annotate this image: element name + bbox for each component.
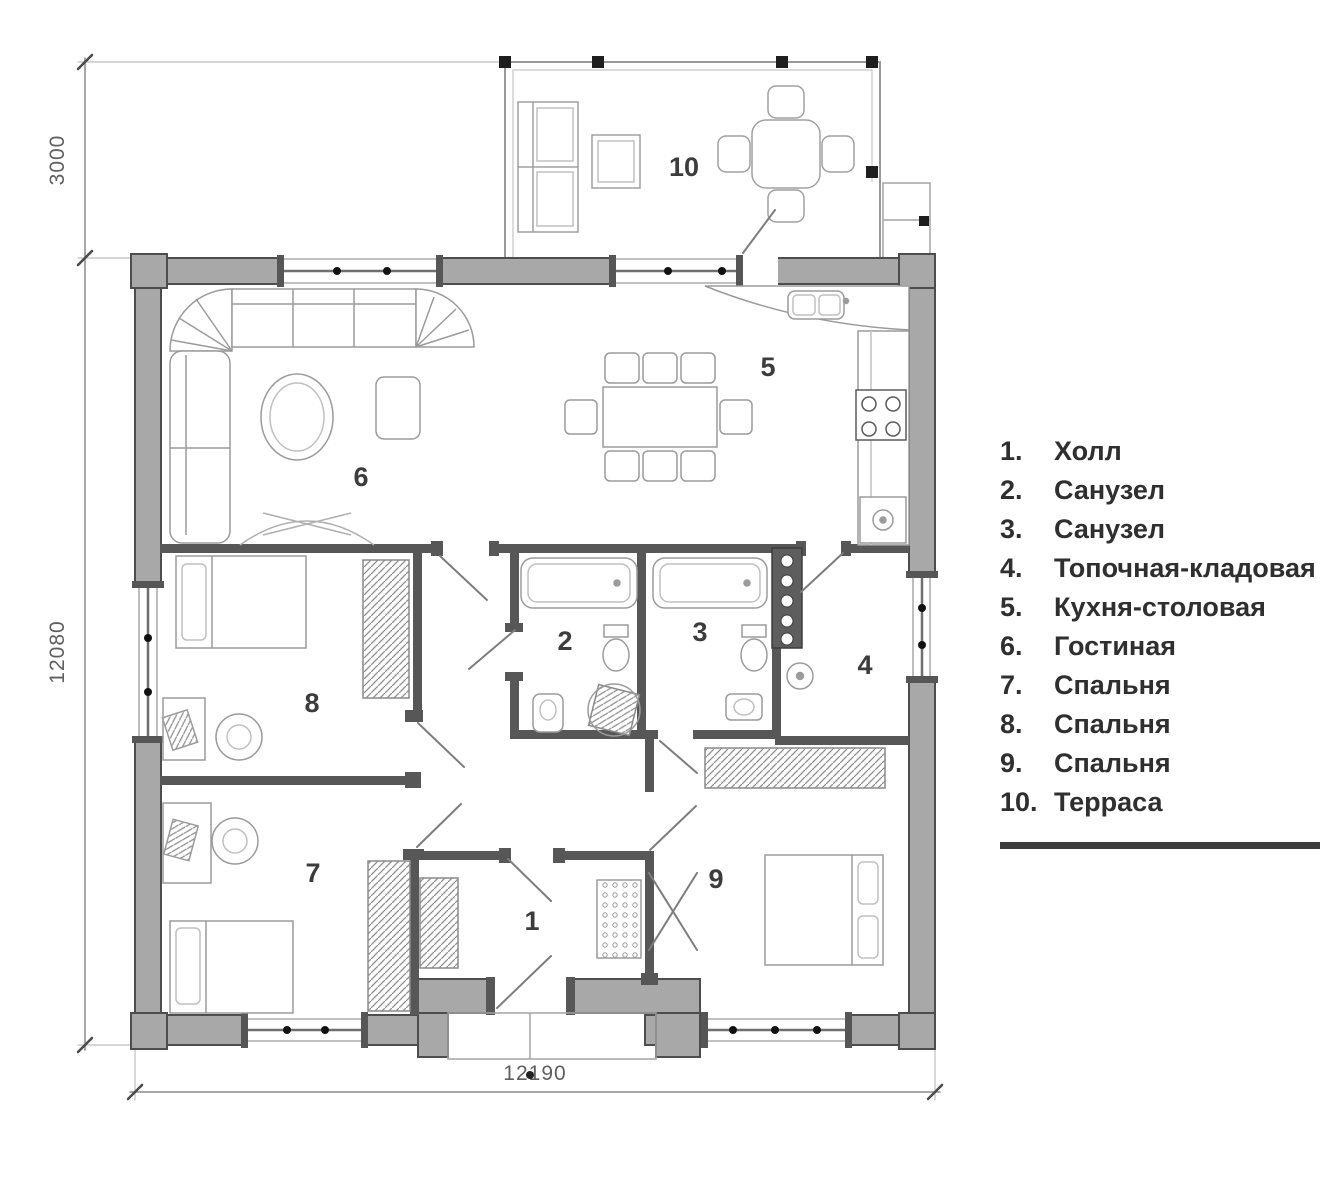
terrace-dining-set-icon — [718, 86, 854, 222]
legend-label: Гостиная — [1054, 631, 1176, 662]
legend-number: 10. — [1000, 787, 1054, 818]
legend-number: 8. — [1000, 709, 1054, 740]
legend-label: Холл — [1054, 436, 1122, 467]
stove-icon — [856, 390, 906, 440]
chair-icon — [212, 818, 258, 864]
window-living — [277, 255, 443, 287]
wardrobe-icon — [368, 861, 410, 1011]
dim-terrace-depth: 3000 — [46, 135, 69, 186]
window-bedroom7 — [241, 1012, 368, 1048]
bedroom9-furniture — [705, 748, 885, 965]
room-label-bath3: 3 — [692, 617, 707, 647]
room-label-living: 6 — [353, 462, 368, 492]
porch-steps — [448, 1013, 656, 1059]
legend-number: 5. — [1000, 592, 1054, 623]
grid-dot — [526, 1071, 534, 1079]
dim-house-width: 12190 — [503, 1062, 566, 1085]
legend-item-5: 5. Кухня-столовая — [1000, 592, 1320, 631]
room-label-bedroom7: 7 — [305, 858, 320, 888]
legend-number: 2. — [1000, 475, 1054, 506]
console-icon — [240, 513, 374, 545]
sink-icon — [726, 694, 762, 720]
legend-label: Кухня-столовая — [1054, 592, 1266, 623]
chair-icon — [216, 714, 262, 760]
room-label-boiler: 4 — [857, 650, 872, 680]
legend-item-1: 1. Холл — [1000, 436, 1320, 475]
legend-label: Терраса — [1054, 787, 1163, 818]
kitchen-sink-icon — [788, 291, 849, 319]
legend-label: Спальня — [1054, 748, 1171, 779]
toilet-icon — [741, 625, 767, 671]
washer-icon — [588, 684, 640, 736]
legend-item-10: 10. Терраса — [1000, 787, 1320, 826]
boiler-room-fixtures — [787, 663, 813, 689]
wardrobe-icon — [705, 748, 885, 788]
room-label-terrace: 10 — [669, 152, 699, 182]
legend-label: Спальня — [1054, 670, 1171, 701]
legend-item-9: 9. Спальня — [1000, 748, 1320, 787]
wardrobe-icon — [420, 878, 458, 968]
terrace-area — [499, 56, 930, 258]
wardrobe-icon — [363, 560, 409, 698]
legend-number: 1. — [1000, 436, 1054, 467]
legend-item-7: 7. Спальня — [1000, 670, 1320, 709]
bathtub-icon — [653, 558, 767, 608]
bathroom3-fixtures — [653, 558, 767, 720]
floor-plan-page: 3000 12080 12190 — [0, 0, 1320, 1188]
kitchen-furniture — [565, 286, 909, 545]
legend-number: 6. — [1000, 631, 1054, 662]
living-room-furniture — [170, 289, 474, 545]
armchair-icon — [376, 377, 420, 439]
room-label-bedroom8: 8 — [304, 688, 319, 718]
legend-item-3: 3. Санузел — [1000, 514, 1320, 553]
terrace-table-icon — [592, 135, 640, 188]
window-bedroom9 — [701, 1012, 852, 1048]
dim-house-depth: 12080 — [46, 620, 69, 683]
sink-icon — [533, 694, 563, 732]
boiler-column-icon — [772, 548, 802, 648]
window-bedroom8 — [132, 581, 164, 743]
double-bed-icon — [765, 855, 883, 965]
legend-label: Санузел — [1054, 514, 1165, 545]
bedroom7-furniture — [163, 803, 410, 1013]
legend-item-6: 6. Гостиная — [1000, 631, 1320, 670]
room-legend: 1. Холл 2. Санузел 3. Санузел 4. Топочна… — [1000, 436, 1320, 849]
bed-icon — [170, 921, 293, 1013]
legend-item-2: 2. Санузел — [1000, 475, 1320, 514]
legend-label: Спальня — [1054, 709, 1171, 740]
dining-set-icon — [565, 353, 752, 481]
bedroom8-furniture — [162, 556, 409, 760]
room-label-kitchen: 5 — [760, 352, 775, 382]
shoe-bench-icon — [597, 880, 641, 958]
room-label-bath2: 2 — [557, 626, 572, 656]
room-label-bedroom9: 9 — [708, 864, 723, 894]
floor-plan: 3000 12080 12190 — [0, 0, 960, 1188]
legend-item-8: 8. Спальня — [1000, 709, 1320, 748]
legend-number: 9. — [1000, 748, 1054, 779]
bed-icon — [176, 556, 306, 648]
window-kitchen — [609, 255, 743, 287]
coffee-table-icon — [261, 374, 333, 460]
window-boiler-room — [906, 571, 938, 683]
legend-label: Топочная-кладовая — [1054, 553, 1316, 584]
room-label-hall: 1 — [524, 906, 539, 936]
legend-number: 7. — [1000, 670, 1054, 701]
legend-number: 3. — [1000, 514, 1054, 545]
toilet-icon — [603, 625, 629, 671]
legend-number: 4. — [1000, 553, 1054, 584]
legend-divider — [1000, 842, 1320, 849]
kitchen-appliance-icon — [860, 497, 906, 543]
legend-item-4: 4. Топочная-кладовая — [1000, 553, 1320, 592]
terrace-sofa-icon — [518, 102, 578, 232]
legend-label: Санузел — [1054, 475, 1165, 506]
bathtub-icon — [521, 558, 637, 608]
bathroom2-fixtures — [521, 558, 640, 736]
